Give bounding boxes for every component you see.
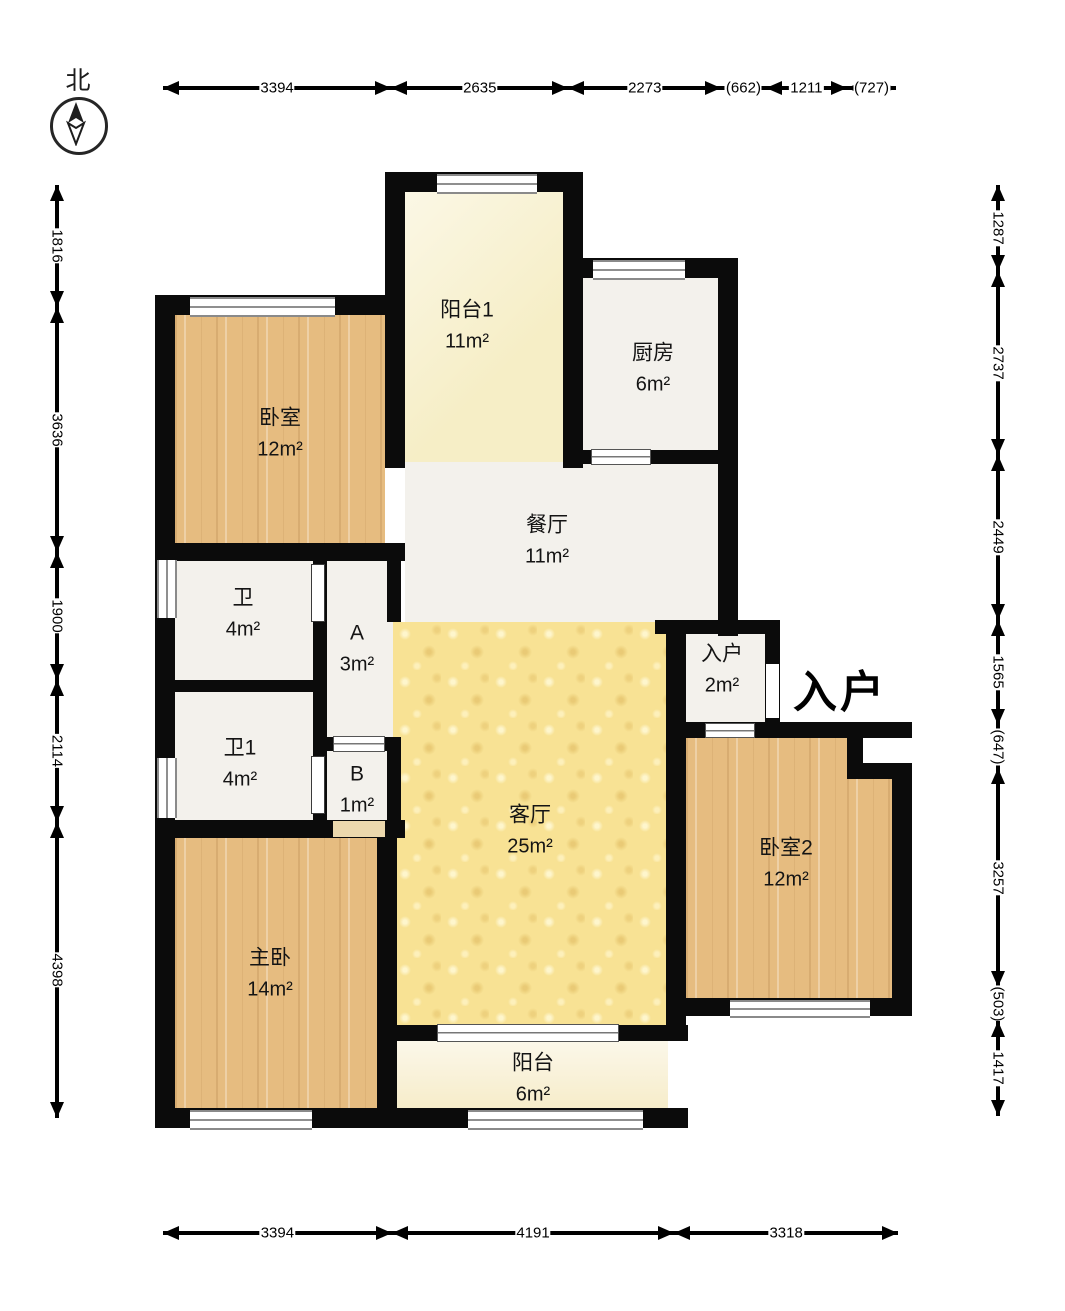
dimension-value: (662) xyxy=(725,80,762,97)
north-label: 北 xyxy=(65,61,90,97)
dimension-value: 1287 xyxy=(990,211,1007,246)
wall xyxy=(155,543,405,561)
dimension-top: 3394 xyxy=(163,80,391,96)
dimension-value: 2635 xyxy=(462,80,497,97)
dimension-left: 4398 xyxy=(49,822,65,1118)
dimension-bottom: 3394 xyxy=(163,1225,392,1241)
window xyxy=(593,260,685,280)
dimension-right: (647) xyxy=(990,725,1006,768)
dimension-value: 3257 xyxy=(990,860,1007,895)
wall xyxy=(377,838,397,1128)
dimension-left: 3636 xyxy=(49,307,65,552)
kitchen-door xyxy=(591,449,651,465)
dimension-value: 2449 xyxy=(990,520,1007,555)
window xyxy=(157,758,177,818)
window xyxy=(468,1110,643,1130)
dimension-value: 3394 xyxy=(260,1225,295,1242)
dimension-value: 2114 xyxy=(49,734,66,768)
dimension-value: 2737 xyxy=(990,346,1007,381)
room-fill-balcony1 xyxy=(405,192,563,462)
wall xyxy=(666,620,686,1041)
dimension-right: 1417 xyxy=(990,1021,1006,1116)
wall xyxy=(892,763,912,1016)
dimension-value: 1417 xyxy=(990,1051,1007,1086)
dimension-right: 2737 xyxy=(990,271,1006,455)
wall xyxy=(155,680,327,692)
wall xyxy=(155,295,175,1128)
dimension-value: 2273 xyxy=(627,80,662,97)
room-fill-balcony2 xyxy=(397,1041,668,1110)
dimension-top: 2635 xyxy=(391,80,568,96)
room-fill-entry xyxy=(683,634,765,722)
bath1-door xyxy=(311,756,325,814)
room-fill-bedroom1 xyxy=(175,315,385,545)
dimension-top: 2273 xyxy=(568,80,721,96)
dimension-value: (727) xyxy=(853,80,890,97)
window xyxy=(437,174,537,194)
dimension-top: (727) xyxy=(847,80,896,96)
dimension-bottom: 3318 xyxy=(674,1225,898,1241)
dimension-right: 1287 xyxy=(990,185,1006,271)
entry-door-opening xyxy=(766,664,779,718)
dimension-value: 3636 xyxy=(49,412,66,447)
wall xyxy=(385,172,405,468)
dimension-right: 3257 xyxy=(990,768,1006,987)
wall xyxy=(563,192,583,468)
dimension-value: (503) xyxy=(990,985,1007,1022)
dimension-value: 4398 xyxy=(49,952,66,987)
master-door-opening xyxy=(333,821,385,837)
compass-needle-icon xyxy=(53,100,99,146)
room-fill-bedroom2 xyxy=(847,779,897,998)
dimension-left: 2114 xyxy=(49,680,65,822)
dimension-value: (647) xyxy=(990,728,1007,765)
bath-door xyxy=(311,564,325,622)
compass-icon xyxy=(50,97,108,155)
wall xyxy=(387,751,401,831)
window xyxy=(157,560,177,618)
dimension-value: 1211 xyxy=(789,80,823,97)
dimension-left: 1900 xyxy=(49,552,65,680)
balcony-slider-door xyxy=(437,1024,619,1042)
dimension-value: 1565 xyxy=(990,655,1007,690)
dimension-top: 1211 xyxy=(766,80,847,96)
window xyxy=(730,1000,870,1018)
room-fill-bedroom2 xyxy=(686,738,847,998)
dimension-bottom: 4191 xyxy=(392,1225,675,1241)
dimension-right: (503) xyxy=(990,987,1006,1021)
entry-direction-label: 入户 xyxy=(793,656,887,720)
dimension-value: 3318 xyxy=(768,1225,803,1242)
bedroom2-door xyxy=(705,723,755,738)
wall xyxy=(666,722,912,738)
dimension-value: 3394 xyxy=(259,80,294,97)
hall-b-door xyxy=(333,736,385,752)
room-fill-dining xyxy=(405,462,718,622)
room-fill-living xyxy=(393,622,668,1027)
dimension-right: 2449 xyxy=(990,455,1006,619)
room-fill-kitchen xyxy=(583,278,718,452)
room-fill-bath xyxy=(175,561,315,680)
dimension-value: 1816 xyxy=(49,228,66,263)
dimension-value: 4191 xyxy=(515,1225,550,1242)
room-fill-master xyxy=(175,838,377,1110)
wall xyxy=(387,543,401,622)
wall xyxy=(718,258,738,636)
room-fill-hall-b xyxy=(327,751,393,822)
wall xyxy=(655,620,780,634)
dimension-top: (662) xyxy=(721,80,766,96)
window xyxy=(190,1110,312,1130)
dimension-left: 1816 xyxy=(49,185,65,307)
dimension-value: 1900 xyxy=(49,598,66,633)
floor-plan: 北 入户 卧室12m²阳台111m²厨房6m²餐厅11m²卫4m²A3m²卫14… xyxy=(0,0,1065,1311)
dimension-right: 1565 xyxy=(990,620,1006,725)
room-fill-bath1 xyxy=(175,692,315,822)
room-fill-hall-a xyxy=(327,561,393,737)
window xyxy=(190,297,335,317)
